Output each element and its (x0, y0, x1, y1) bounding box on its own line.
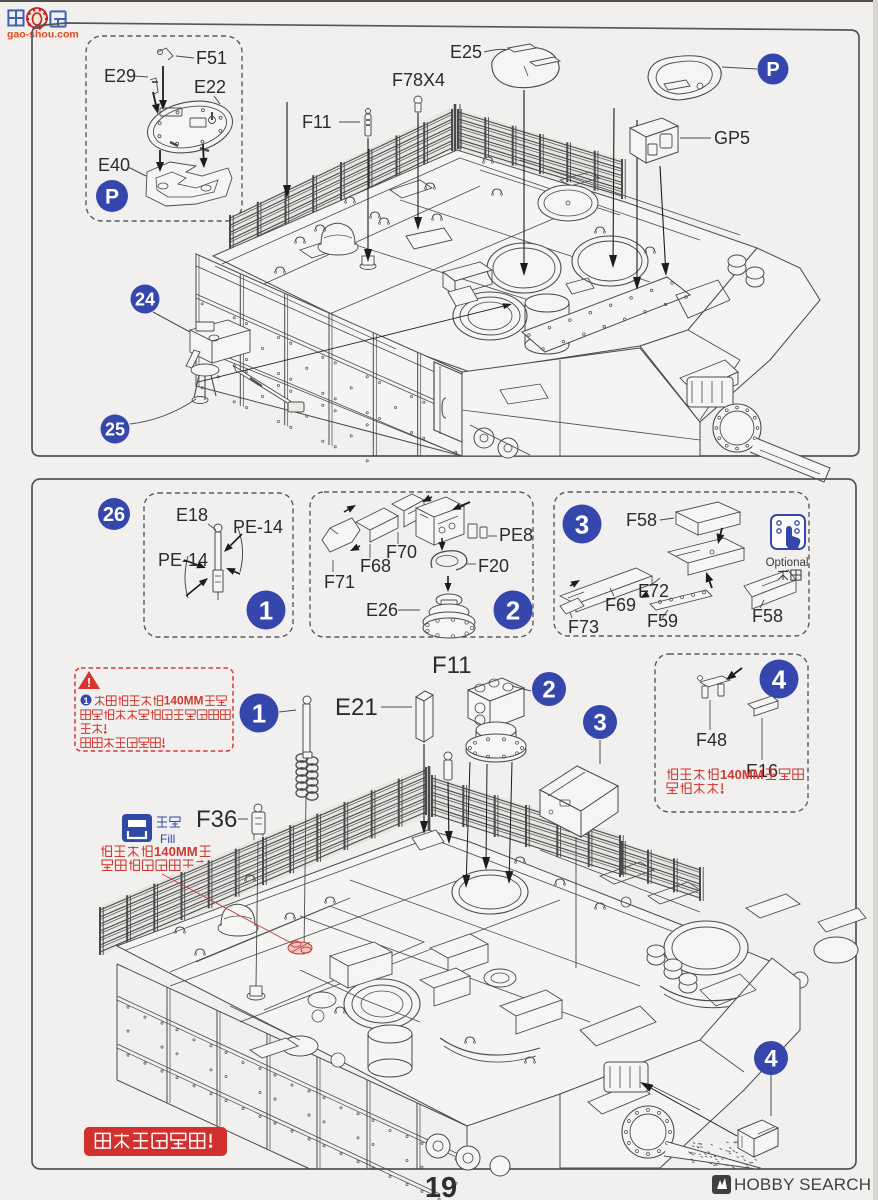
svg-text:GP5: GP5 (714, 128, 750, 148)
svg-text:E22: E22 (194, 77, 226, 97)
svg-text:140MM: 140MM (154, 844, 198, 859)
svg-text:F48: F48 (696, 730, 727, 750)
svg-text:26: 26 (103, 504, 125, 526)
svg-text:!: ! (87, 675, 91, 690)
svg-text:F11: F11 (432, 652, 472, 679)
svg-text:E29: E29 (104, 66, 136, 86)
svg-text:2: 2 (506, 595, 520, 625)
svg-text:2: 2 (542, 677, 555, 704)
svg-text:1: 1 (252, 698, 266, 728)
svg-text:PE-14: PE-14 (233, 517, 283, 537)
svg-text:F69: F69 (605, 595, 636, 615)
svg-text:19: 19 (425, 1172, 457, 1200)
svg-text:E40: E40 (98, 155, 130, 175)
svg-text:E25: E25 (450, 42, 482, 62)
svg-text:F72: F72 (638, 581, 669, 601)
svg-text:140MM: 140MM (164, 694, 204, 708)
svg-text:F20: F20 (478, 556, 509, 576)
svg-text:F59: F59 (647, 611, 678, 631)
svg-text:E18: E18 (176, 505, 208, 525)
svg-text:140MM: 140MM (720, 767, 764, 782)
svg-text:PE-14: PE-14 (158, 550, 208, 570)
svg-text:24: 24 (135, 289, 155, 309)
svg-text:4: 4 (764, 1046, 778, 1073)
svg-text:3: 3 (593, 710, 606, 737)
svg-text:4: 4 (772, 664, 787, 694)
svg-text:E26: E26 (366, 600, 398, 620)
svg-text:F70: F70 (386, 542, 417, 562)
svg-text:Optional: Optional (766, 557, 809, 569)
svg-text:F36: F36 (196, 806, 237, 833)
svg-text:PE8: PE8 (499, 525, 533, 545)
svg-text:F51: F51 (196, 48, 227, 68)
svg-text:P: P (766, 59, 779, 81)
svg-text:1: 1 (83, 696, 88, 706)
svg-text:25: 25 (105, 419, 125, 439)
svg-text:F78X4: F78X4 (392, 70, 445, 90)
svg-text:P: P (105, 186, 119, 209)
svg-text:E21: E21 (335, 694, 378, 721)
svg-text:3: 3 (575, 509, 589, 539)
svg-text:F58: F58 (626, 510, 657, 530)
svg-text:F73: F73 (568, 617, 599, 637)
svg-text:F11: F11 (302, 112, 332, 132)
svg-text:1: 1 (259, 595, 273, 625)
svg-text:F58: F58 (752, 606, 783, 626)
svg-text:gao-shou.com: gao-shou.com (7, 29, 79, 41)
svg-text:F71: F71 (324, 572, 355, 592)
svg-text:HOBBY SEARCH: HOBBY SEARCH (734, 1175, 871, 1194)
